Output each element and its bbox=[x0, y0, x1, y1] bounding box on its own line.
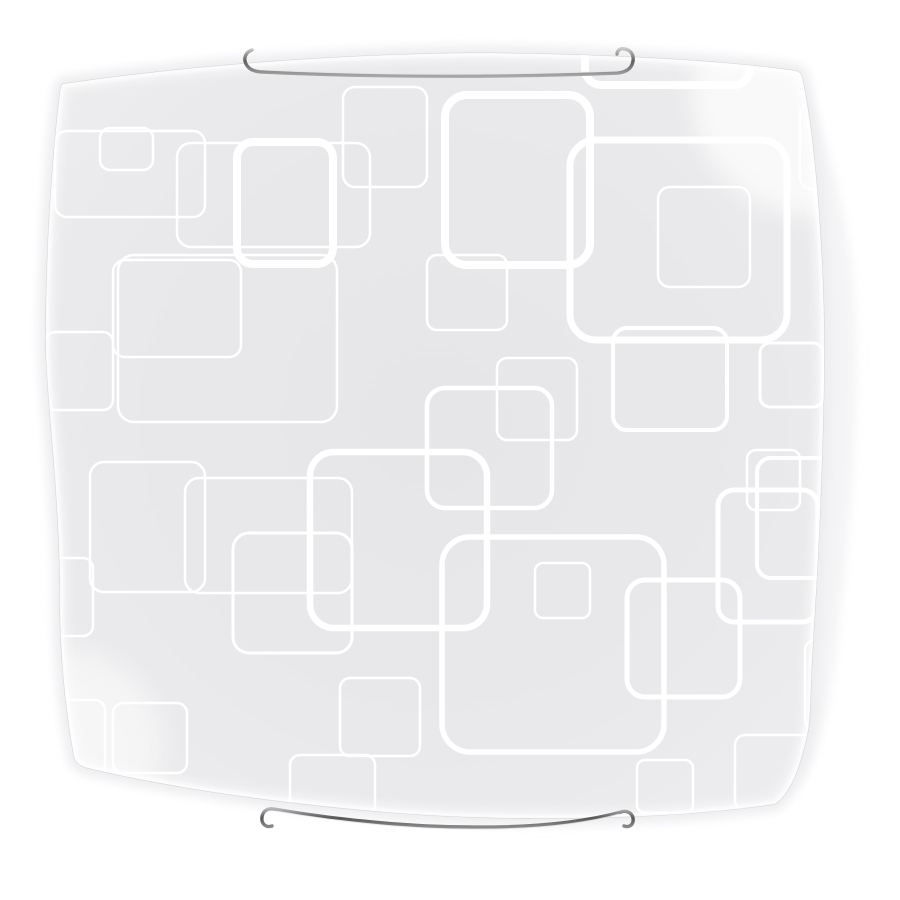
product-photo bbox=[0, 0, 900, 900]
ceiling-lamp-illustration bbox=[0, 0, 900, 900]
